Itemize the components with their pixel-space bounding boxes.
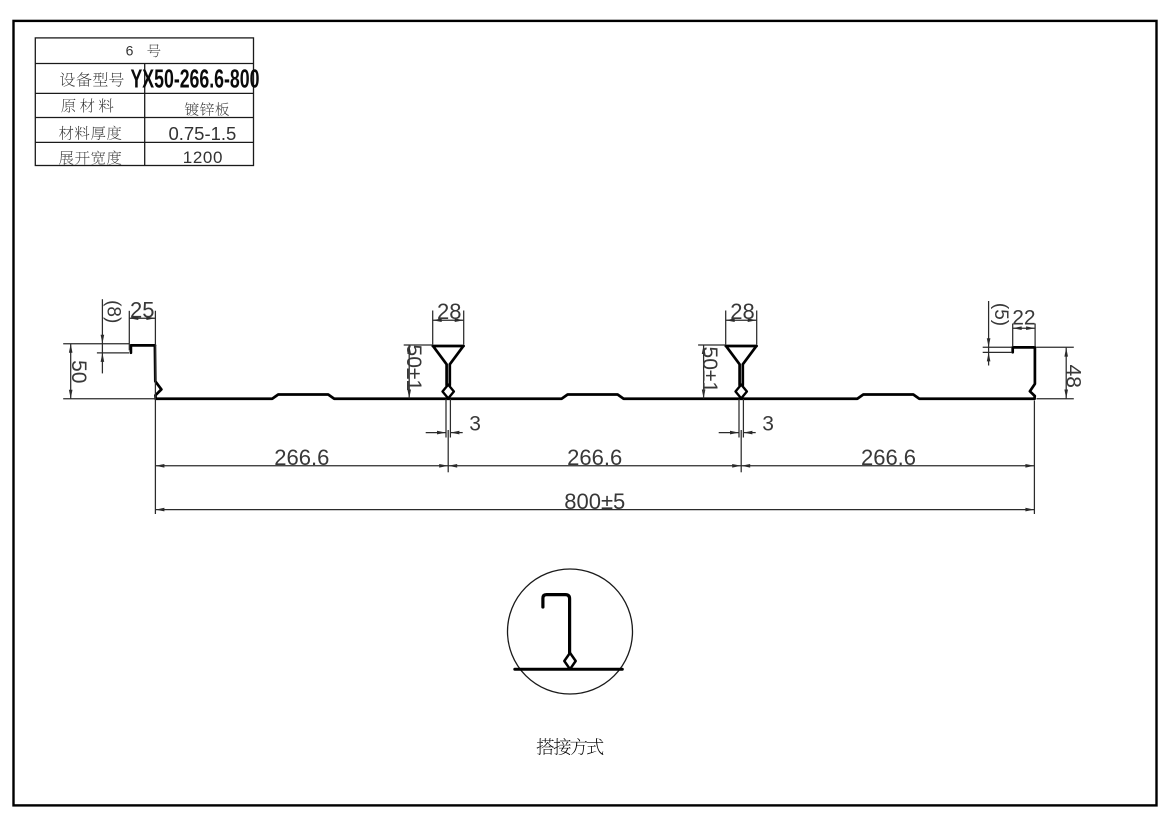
svg-text:50: 50 (67, 360, 90, 383)
svg-text:(5): (5) (990, 303, 1011, 326)
svg-text:3: 3 (469, 413, 481, 436)
svg-text:0.75-1.5: 0.75-1.5 (168, 123, 236, 144)
svg-text:25: 25 (130, 298, 154, 323)
svg-text:1200: 1200 (183, 148, 223, 167)
svg-text:6: 6 (126, 42, 134, 58)
svg-text:28: 28 (437, 299, 461, 324)
svg-text:28: 28 (730, 299, 754, 324)
svg-text:22: 22 (1012, 307, 1035, 330)
svg-text:3: 3 (762, 413, 774, 436)
svg-text:800±5: 800±5 (564, 489, 625, 514)
svg-text:YX50-266.6-800: YX50-266.6-800 (131, 64, 260, 93)
svg-text:50±1: 50±1 (402, 345, 425, 392)
svg-text:266.6: 266.6 (274, 445, 329, 470)
svg-text:266.6: 266.6 (567, 445, 622, 470)
svg-text:(8): (8) (103, 300, 124, 323)
svg-text:266.6: 266.6 (861, 445, 916, 470)
svg-text:50±1: 50±1 (698, 347, 721, 394)
svg-text:48: 48 (1062, 365, 1085, 388)
